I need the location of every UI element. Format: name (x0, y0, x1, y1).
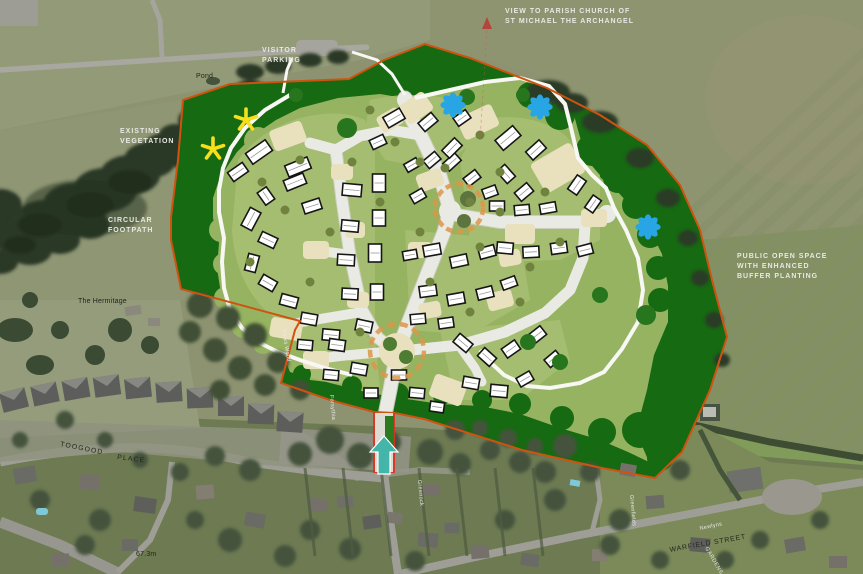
svg-text:PARKING: PARKING (262, 57, 301, 64)
svg-text:The Hermitage: The Hermitage (78, 298, 127, 305)
svg-text:CIRCULAR: CIRCULAR (108, 217, 153, 224)
svg-text:Pond: Pond (196, 73, 213, 80)
svg-text:EXISTING: EXISTING (120, 128, 161, 135)
svg-text:VISITOR: VISITOR (262, 47, 297, 54)
svg-text:67.3m: 67.3m (136, 551, 156, 558)
svg-text:FOOTPATH: FOOTPATH (108, 227, 153, 234)
svg-text:VEGETATION: VEGETATION (120, 138, 174, 145)
svg-text:ST MICHAEL THE ARCHANGEL: ST MICHAEL THE ARCHANGEL (505, 18, 634, 25)
svg-text:VIEW TO PARISH CHURCH OF: VIEW TO PARISH CHURCH OF (505, 8, 630, 15)
svg-text:PUBLIC OPEN SPACE: PUBLIC OPEN SPACE (737, 253, 827, 260)
svg-text:WITH ENHANCED: WITH ENHANCED (737, 263, 810, 270)
svg-text:BUFFER PLANTING: BUFFER PLANTING (737, 273, 818, 280)
